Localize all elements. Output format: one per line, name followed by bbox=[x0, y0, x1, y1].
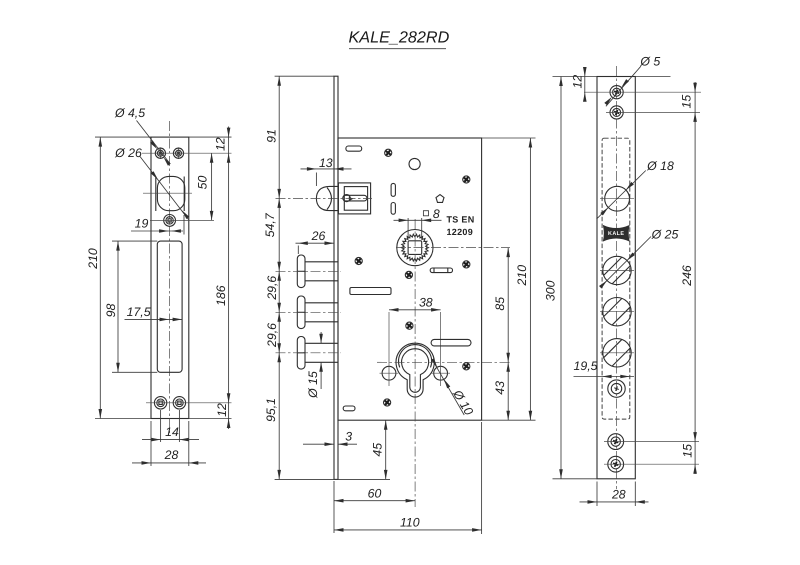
svg-text:19: 19 bbox=[135, 216, 149, 230]
svg-text:91: 91 bbox=[264, 129, 278, 143]
svg-text:Ø 4,5: Ø 4,5 bbox=[114, 106, 145, 120]
svg-text:Ø 15: Ø 15 bbox=[306, 371, 320, 399]
svg-text:17,5: 17,5 bbox=[127, 305, 151, 319]
svg-text:186: 186 bbox=[214, 285, 228, 306]
svg-text:28: 28 bbox=[611, 488, 626, 502]
svg-text:98: 98 bbox=[104, 304, 118, 318]
svg-text:TS EN: TS EN bbox=[447, 214, 475, 224]
svg-text:210: 210 bbox=[86, 248, 100, 270]
svg-text:50: 50 bbox=[195, 176, 209, 190]
svg-text:Ø 5: Ø 5 bbox=[639, 55, 660, 69]
svg-text:KALE: KALE bbox=[608, 231, 624, 237]
svg-text:60: 60 bbox=[368, 487, 382, 501]
svg-text:246: 246 bbox=[680, 265, 694, 287]
svg-text:85: 85 bbox=[493, 297, 507, 311]
svg-text:95,1: 95,1 bbox=[264, 398, 278, 422]
svg-text:Ø 26: Ø 26 bbox=[114, 146, 142, 160]
svg-text:29,6: 29,6 bbox=[265, 323, 279, 348]
svg-text:15: 15 bbox=[681, 444, 695, 458]
svg-text:8: 8 bbox=[433, 207, 440, 221]
svg-text:Ø 10: Ø 10 bbox=[450, 387, 476, 418]
svg-text:110: 110 bbox=[400, 515, 420, 529]
svg-text:15: 15 bbox=[680, 95, 694, 109]
svg-text:300: 300 bbox=[543, 280, 557, 301]
svg-text:14: 14 bbox=[165, 425, 179, 439]
svg-text:45: 45 bbox=[371, 443, 385, 457]
svg-text:12209: 12209 bbox=[447, 227, 474, 237]
svg-text:19,5: 19,5 bbox=[574, 359, 598, 373]
svg-text:38: 38 bbox=[419, 296, 433, 310]
svg-text:3: 3 bbox=[345, 430, 352, 444]
svg-text:28: 28 bbox=[164, 448, 179, 462]
svg-text:Ø 25: Ø 25 bbox=[651, 227, 679, 241]
svg-text:29,6: 29,6 bbox=[265, 276, 279, 301]
svg-text:43: 43 bbox=[493, 381, 507, 395]
svg-text:54,7: 54,7 bbox=[263, 212, 277, 237]
svg-text:Ø 18: Ø 18 bbox=[646, 159, 674, 173]
svg-text:26: 26 bbox=[311, 229, 326, 243]
svg-text:210: 210 bbox=[515, 265, 529, 287]
svg-text:13: 13 bbox=[319, 156, 333, 170]
svg-text:KALE_282RD: KALE_282RD bbox=[349, 29, 450, 47]
svg-text:12: 12 bbox=[213, 137, 227, 151]
svg-text:12: 12 bbox=[215, 403, 229, 417]
